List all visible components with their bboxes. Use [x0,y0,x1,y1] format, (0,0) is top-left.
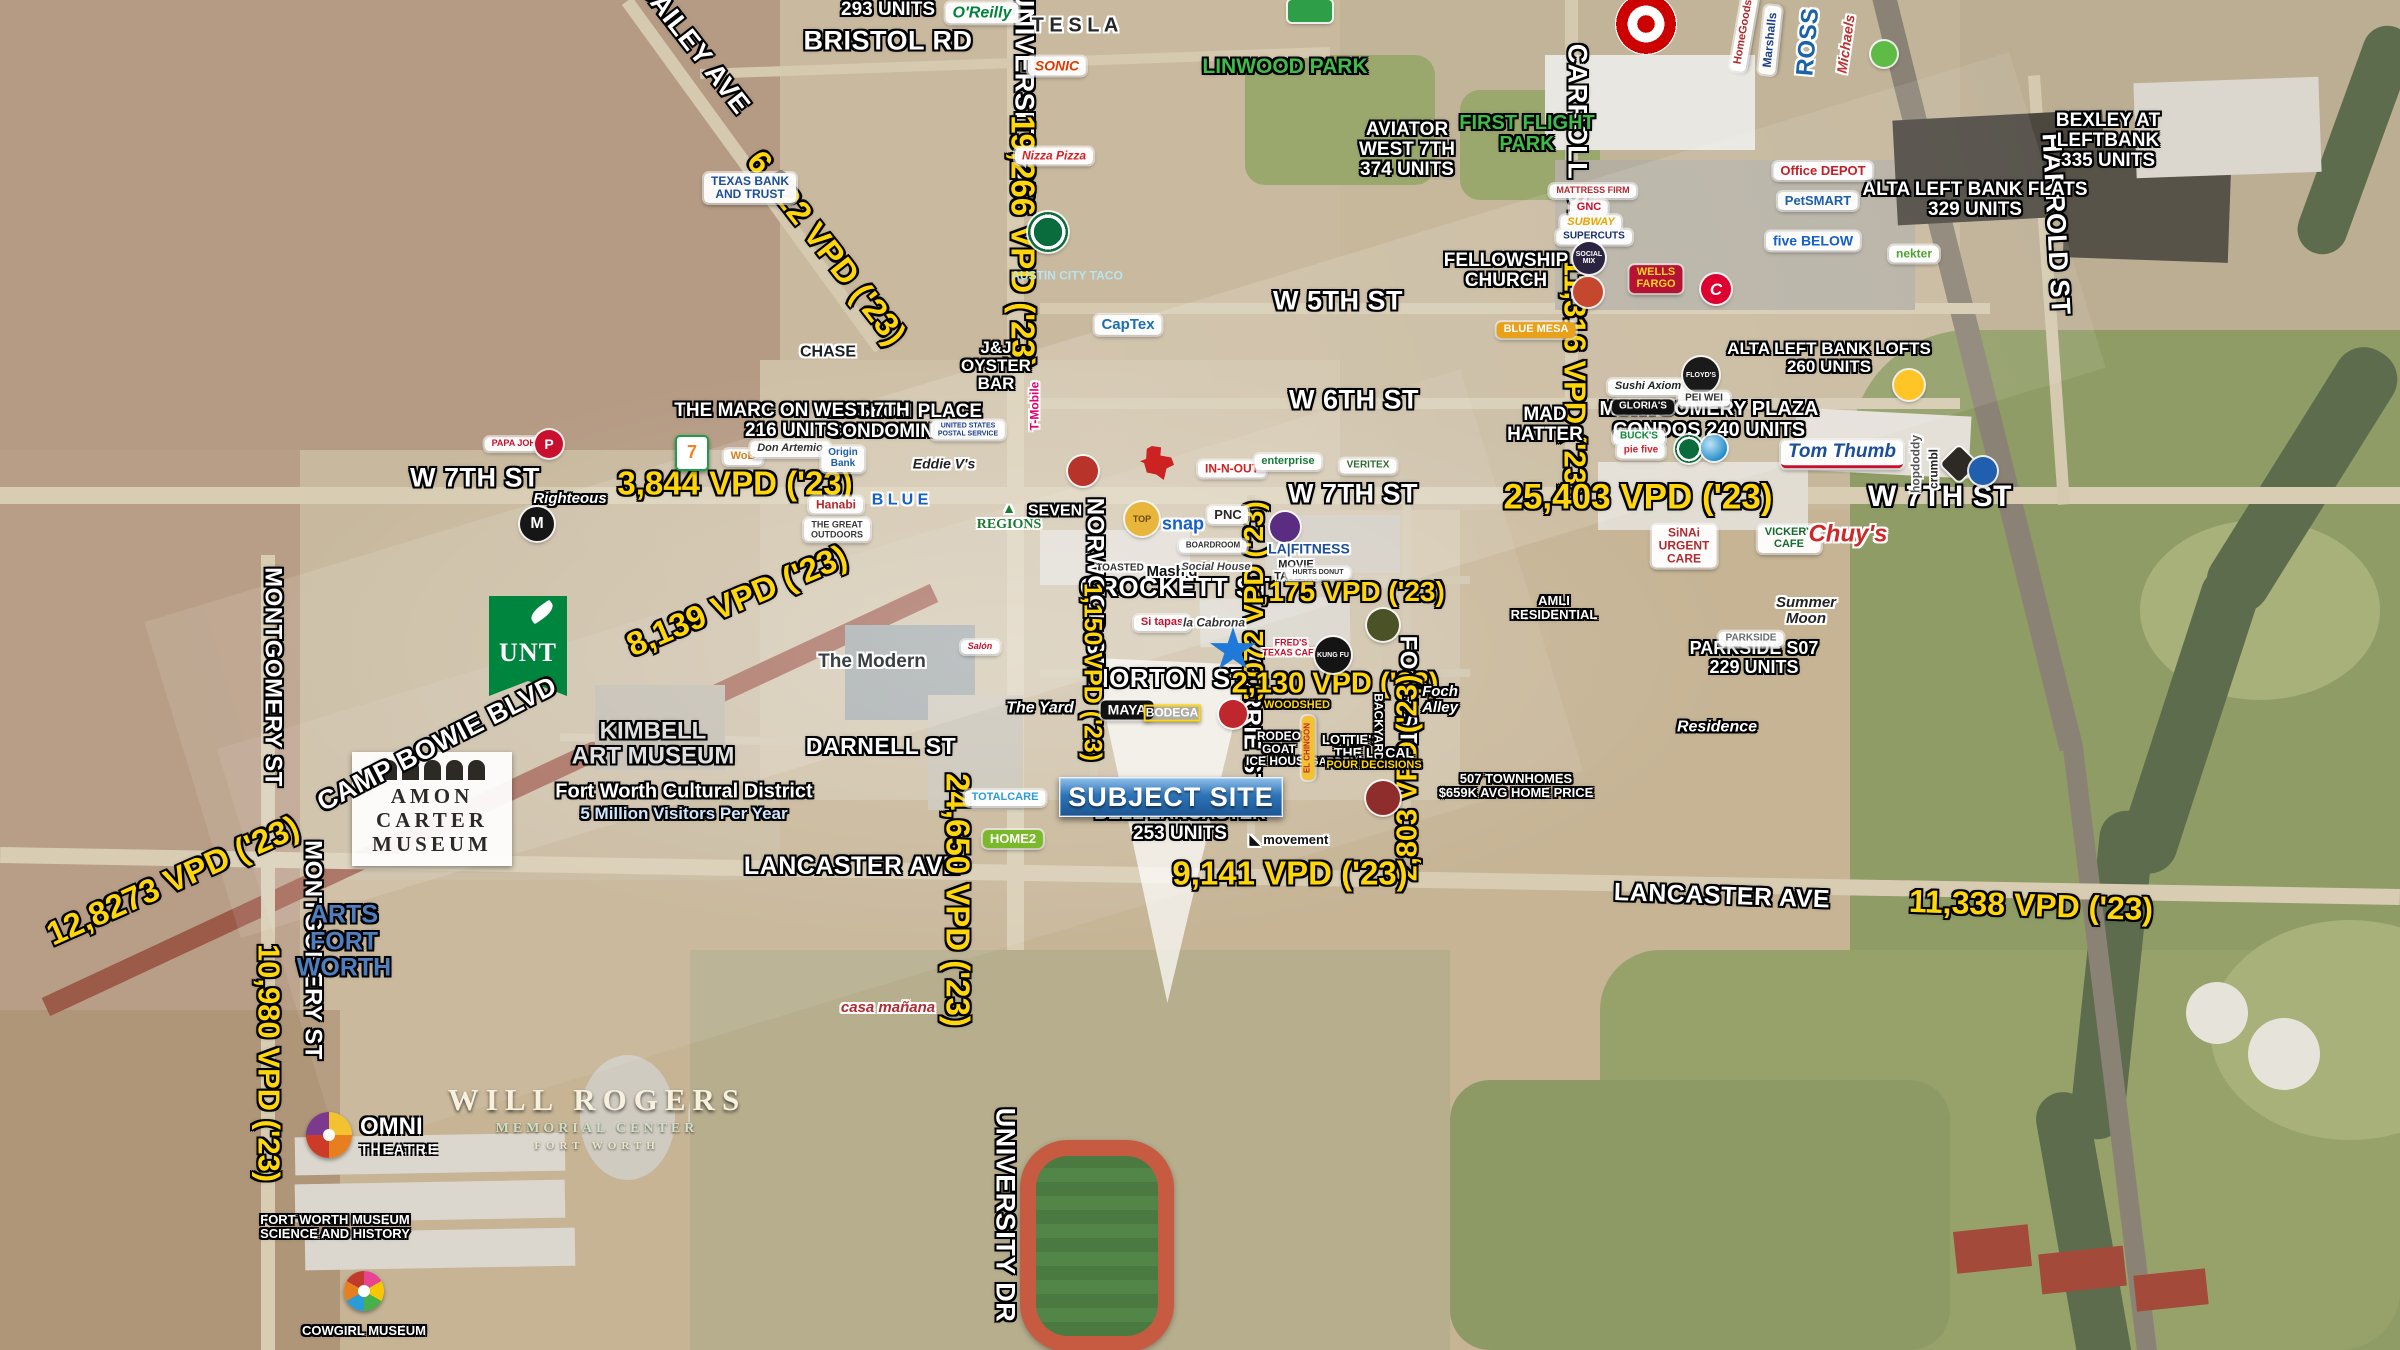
hopdoddy-logo: hopdoddy [1910,435,1923,493]
unt-eagle-icon [528,600,556,625]
label-293-units: 293 UNITS [841,0,935,20]
basemap-shape [2186,982,2248,1044]
totalcare-logo: TOTALCARE [965,790,1046,806]
label-arts-fort-worth: ARTS FORT WORTH [297,901,391,981]
omni-pinwheel-icon [306,1112,352,1158]
snap-kitchen-logo: snap [1162,514,1204,533]
la-cabrona-logo: la Cabrona [1183,617,1245,630]
righteous-logo: Righteous [533,491,606,507]
gnc-logo: GNC [1570,200,1608,216]
basemap-shape [1953,1224,2032,1274]
omni-line2: THEATRE [360,1141,439,1157]
round-logo-2 [1068,456,1098,486]
street-bristol-rd: BRISTOL RD [803,27,972,56]
buffalo-wild-wings-logo [1894,370,1924,400]
toasted-logo: TOASTED [1096,564,1144,575]
captex-logo: CapTex [1094,315,1161,335]
chick-fil-a-logo: C [1701,274,1731,304]
hanabi-logo: Hanabi [809,497,863,514]
label-marc-on-west-7th: THE MARC ON WEST 7TH 216 UNITS [674,401,909,441]
amon-carter-line2: CARTER [356,808,508,832]
blue-circle-logo [1969,457,1997,485]
green-store-logo [1288,0,1332,22]
vpd-10980: 10,980 VPD ('23) [252,944,285,1182]
oreilly-logo: O'Reilly [946,2,1019,23]
vpd-9141: 9,141 VPD ('23) [1172,857,1407,892]
pie-five-logo: pie five [1617,444,1665,459]
omni-line1: OMNI [360,1113,439,1141]
nekter-logo: nekter [1889,246,1939,263]
enterprise-logo: enterprise [1254,454,1321,470]
label-woodshed: WOODSHED [1264,700,1330,712]
label-foch-alley: Foch Alley [1422,684,1458,716]
stadium-field [1036,1156,1158,1336]
vpd-25403: 25,403 VPD ('23) [1503,478,1772,515]
street-w-7th-st-center: W 7TH ST [1288,480,1418,509]
basemap-shape [2133,77,2321,178]
don-artemio-logo: Don Artemio [750,441,830,457]
will-rogers-memorial-center-logo: WILL ROGERS MEMORIAL CENTER FORT WORTH [448,1082,746,1152]
label-pour-decisions: POUR DECISIONS [1326,760,1421,772]
label-cultural-district: Fort Worth Cultural District [555,781,812,802]
sinai-urgent-care-logo: SiNAi URGENT CARE [1652,525,1717,568]
usps-logo: UNITED STATES POSTAL SERVICE [931,420,1005,439]
t-mobile-logo: T-Mobile [1029,382,1042,431]
red-script-logo [1219,700,1247,728]
m-restaurant-logo: M [520,507,554,541]
round-logo-1 [1573,277,1603,307]
petsmart-logo: PetSMART [1778,192,1858,210]
vpd-1150: 1,150 VPD ('23) [1079,583,1106,761]
la-fitness-logo: LA|FITNESS [1268,542,1350,557]
tesla-logo: T E S L A [1032,15,1119,36]
label-aviator-west-7th: AVIATOR WEST 7TH 374 UNITS [1359,120,1455,180]
office-depot-logo: Office DEPOT [1773,162,1872,180]
street-w-6th-st: W 6TH ST [1289,386,1419,415]
street-w-5th-st: W 5TH ST [1273,287,1403,316]
label-first-flight-park: FIRST FLIGHT PARK [1459,113,1595,155]
the-yard-logo: The Yard [1006,701,1074,718]
top-crown-logo: TOP [1125,502,1159,536]
subject-site-banner: SUBJECT SITE [1059,777,1283,817]
label-amli-residential: AMLI RESIDENTIAL [1511,594,1598,622]
label-alta-left-bank-lofts: ALTA LEFT BANK LOFTS 260 UNITS [1727,340,1931,376]
nizza-pizza-logo: Nizza Pizza [1015,148,1093,165]
freds-texas-cafe-logo: FRED'S TEXAS CAFE [1262,638,1319,657]
label-residence: Residence [1677,720,1757,737]
omni-theatre-logo: OMNI THEATRE [306,1112,439,1158]
home2-logo: HOME2 [983,830,1043,848]
tom-thumb-logo: Tom Thumb [1781,440,1903,468]
sushi-axiom-logo: Sushi Axiom [1608,379,1688,395]
the-modern-logo: The Modern [818,652,926,672]
label-jj-oyster-bar: J&J OYSTER BAR [961,339,1031,393]
olive-circle-logo [1367,609,1399,641]
movement-logo: ◣ movement [1250,833,1329,847]
bodega-logo: BODEGA [1144,705,1201,722]
label-cowgirl-museum: COWGIRL MUSEUM [302,1324,426,1338]
label-fellowship-church: FELLOWSHIP CHURCH [1444,251,1569,291]
starbucks-logo-plaza [1675,435,1703,463]
will-rogers-line3: FORT WORTH [448,1140,746,1152]
sonic-logo: SONIC [1028,56,1086,75]
pei-wei-logo: PEI WEI [1678,392,1730,407]
blue-sushi-logo: B L U E [872,493,929,510]
glorias-logo: GLORIA'S [1612,400,1674,415]
veritex-logo: VERITEX [1340,459,1397,474]
street-morton-st: MORTON ST [1087,665,1247,693]
great-outdoors-logo: THE GREAT OUTDOORS [804,518,870,541]
aerial-map: SUBJECT SITE UNT AMON CARTER MUSEUM WILL… [0,0,2400,1350]
five-below-logo: five BELOW [1766,231,1860,250]
floyds-logo: FLOYD'S [1683,357,1719,393]
street-w-7th-st-left: W 7TH ST [410,464,540,493]
basemap-shape [1450,1080,1950,1350]
dollar-tree-logo [1871,41,1897,67]
subject-site-label: SUBJECT SITE [1068,782,1274,813]
label-507-townhomes: 507 TOWNHOMES $659K AVG HOME PRICE [1439,772,1594,800]
basemap-shape [2248,1018,2320,1090]
origin-bank-logo: Origin Bank [821,446,864,472]
pnc-logo: PNC [1207,506,1248,524]
blue-mesa-logo: BLUE MESA [1497,322,1576,338]
label-backyard: BACKYARD [1372,693,1385,761]
farrington-field-stadium [1020,1140,1174,1350]
att-logo [1701,435,1727,461]
el-chingon-logo: EL CHINGON [1302,716,1315,780]
ross-logo: ROSS [1792,7,1823,77]
mattress-firm-logo: MATTRESS FIRM [1549,184,1636,198]
chuys-logo: Chuy's [1808,521,1887,546]
vpd-24650: 24,650 VPD ('23) [940,773,975,1027]
seven-eleven-logo: 7 [675,435,709,471]
cowgirl-museum-flower-icon [344,1271,384,1311]
boardroom-logo: BOARDROOM [1179,540,1247,553]
austin-city-taco-logo: AUSTIN CITY TACO [1011,270,1123,283]
casa-manana-logo: casa mañana [841,1000,935,1016]
label-bexley-at-leftbank: BEXLEY AT LEFTBANK 335 UNITS [2056,111,2160,171]
label-mad-hatter: MAD HATTER [1507,405,1583,445]
summer-moon-logo: Summer Moon [1776,595,1836,627]
label-alta-left-bank-flats: ALTA LEFT BANK FLATS 329 UNITS [1862,180,2087,220]
street-lancaster-ave-left: LANCASTER AVE [744,853,960,880]
funky-picnic-logo [1366,781,1400,815]
social-house-logo: Social House [1181,562,1250,574]
texas-bank-trust-logo: TEXAS BANK AND TRUST [704,173,796,203]
crumbl-cookies-logo: crumbl [1928,449,1941,489]
unt-label: UNT [489,638,567,668]
will-rogers-line1: WILL ROGERS [448,1082,746,1118]
salon-logo: Salón [961,640,1000,654]
parkside-logo: PARKSIDE [1719,632,1784,647]
label-linwood-park: LINWOOD PARK [1202,56,1367,78]
starbucks-logo-university [1028,212,1068,252]
amon-carter-line3: MUSEUM [356,832,508,856]
eddie-vs-logo: Eddie V's [913,457,975,472]
basemap-shape [2133,1268,2208,1311]
vpd-2803: 2,803 VPD ('23) [1393,675,1424,882]
label-kimbell-art-museum: KIMBELL ART MUSEUM [572,719,735,770]
social-mix-logo: SOCIAL MIX [1573,242,1605,274]
basemap-shape [0,1010,340,1350]
wells-fargo-logo: WELLS FARGO [1629,265,1682,293]
chase-logo: CHASE [800,345,856,362]
kung-fu-logo: KUNG FU [1315,637,1351,673]
pure-barre-logo: P [535,430,563,458]
purple-circle-logo [1270,512,1300,542]
will-rogers-line2: MEMORIAL CENTER [448,1121,746,1137]
bucks-logo: BUCK'S [1613,430,1665,445]
street-university-dr-bottom: UNIVERSITY DR [991,1108,1020,1323]
seven-logo: SEVEN [1028,504,1082,521]
label-cultural-district-visitors: 5 Million Visitors Per Year [580,805,787,823]
street-darnell-st: DARNELL ST [806,734,956,758]
hurts-donut-logo: HURTS DONUT [1286,567,1351,579]
subway-logo: SUBWAY [1560,215,1621,231]
si-tapas-logo: Si tapas [1134,615,1190,631]
label-fort-worth-museum: FORT WORTH MUSEUM SCIENCE AND HISTORY [260,1213,410,1241]
street-montgomery-st-upper: MONTGOMERY ST [260,567,285,787]
